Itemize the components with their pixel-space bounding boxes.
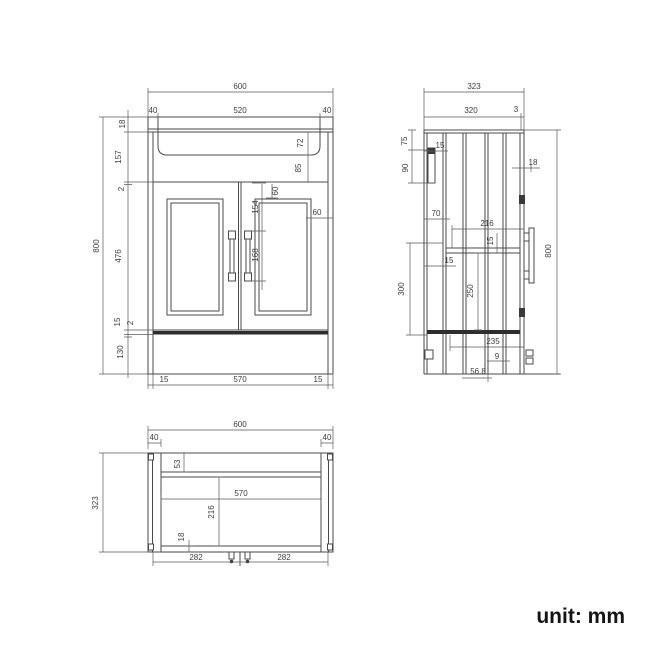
front-dim-gap-top: 2 [117,186,126,191]
unit-label: unit: mm [536,605,625,628]
back-foot-bracket [425,350,433,359]
front-dim-top-thickness: 18 [118,119,127,128]
left-door-handle [229,231,236,281]
bottom-dim-front-rail: 18 [177,532,186,541]
side-dim-rail-depth: 216 [480,219,494,228]
side-dim-total-depth: 323 [467,82,481,91]
side-dim-total-height: 800 [544,244,553,258]
front-dim-shelf-thickness: 15 [113,317,122,326]
front-dim-panel-offset-side: 60 [313,208,322,217]
upper-hinge [519,195,525,204]
bottom-dim-total-depth: 323 [91,496,100,510]
front-foot-bracket-bottom [526,358,533,364]
side-shelf-edge [427,330,520,334]
side-dim-rail-offset: 70 [432,209,441,218]
bottom-dim-inner-depth: 216 [207,505,216,519]
front-dim-panel-offset-top: 60 [271,186,280,195]
front-view: 600 40 520 40 18 157 2 476 15 2 130 800 … [92,82,333,389]
front-dim-total-width: 600 [233,82,247,91]
technical-drawing-canvas: 600 40 520 40 18 157 2 476 15 2 130 800 … [0,0,650,650]
side-dim-bracket-height: 90 [401,163,410,172]
side-dimension-lines [406,88,561,382]
side-dim-body-depth: 320 [464,106,478,115]
front-dim-base-right: 15 [314,375,323,384]
front-dim-upper-section: 157 [114,150,123,164]
bottom-dim-fixing-left: 282 [189,553,203,562]
basin-outline [158,117,320,155]
bottom-dim-fixing-right: 282 [277,553,291,562]
front-dim-door-height: 476 [114,249,123,263]
front-foot-bracket-top [526,350,533,356]
front-dim-total-height: 800 [92,239,101,253]
side-handle-profile [524,228,534,283]
side-dim-back-inset: 15 [445,256,454,265]
side-dim-foot-offset: 56.8 [470,367,486,376]
side-dim-inner-height: 250 [466,284,475,298]
right-door-panel [255,199,311,315]
front-dim-handle-length: 168 [251,248,260,262]
side-dim-bracket-offset: 75 [400,136,409,145]
bottom-view: 600 40 40 323 53 570 216 18 282 282 [91,420,333,566]
bottom-dim-back-rail: 53 [173,459,182,468]
front-dim-gap-bottom: 2 [126,320,135,325]
front-dim-basin-to-door: 85 [294,163,303,172]
side-view: 323 320 3 75 90 15 18 70 216 15 15 300 2… [397,82,561,382]
side-dim-shelf-depth: 235 [486,337,500,346]
front-dim-basin-width: 520 [233,106,247,115]
front-dim-plinth-height: 130 [116,345,125,359]
side-dim-lower-height: 300 [397,282,406,296]
lower-hinge [519,308,525,317]
front-dim-handle-offset: 154 [251,200,260,214]
side-dim-rail-thickness: 15 [486,236,495,245]
front-cabinet-outline [148,117,333,374]
bottom-dim-inner-width: 570 [234,489,248,498]
front-dim-basin-depth: 72 [296,138,305,147]
side-dim-top-overhang: 18 [529,158,538,167]
side-dim-plinth-recess: 9 [495,352,500,361]
front-dimension-lines [99,88,333,389]
front-dim-base-width: 570 [233,375,247,384]
bottom-dim-margin-right: 40 [323,433,332,442]
vanity-technical-drawing-page: 600 40 520 40 18 157 2 476 15 2 130 800 … [0,0,650,650]
left-door-panel [167,199,223,315]
side-dim-back-panel: 3 [514,105,519,114]
front-dim-basin-margin-right: 40 [323,106,332,115]
front-dim-basin-margin-left: 40 [149,106,158,115]
side-dim-bracket-thickness: 15 [436,141,445,150]
front-dim-base-left: 15 [160,375,169,384]
bottom-dimension-lines [99,426,333,566]
bottom-dim-margin-left: 40 [150,433,159,442]
bottom-dim-total-width: 600 [233,420,247,429]
front-shelf-edge [153,331,328,335]
bottom-cabinet-outline [148,453,333,566]
